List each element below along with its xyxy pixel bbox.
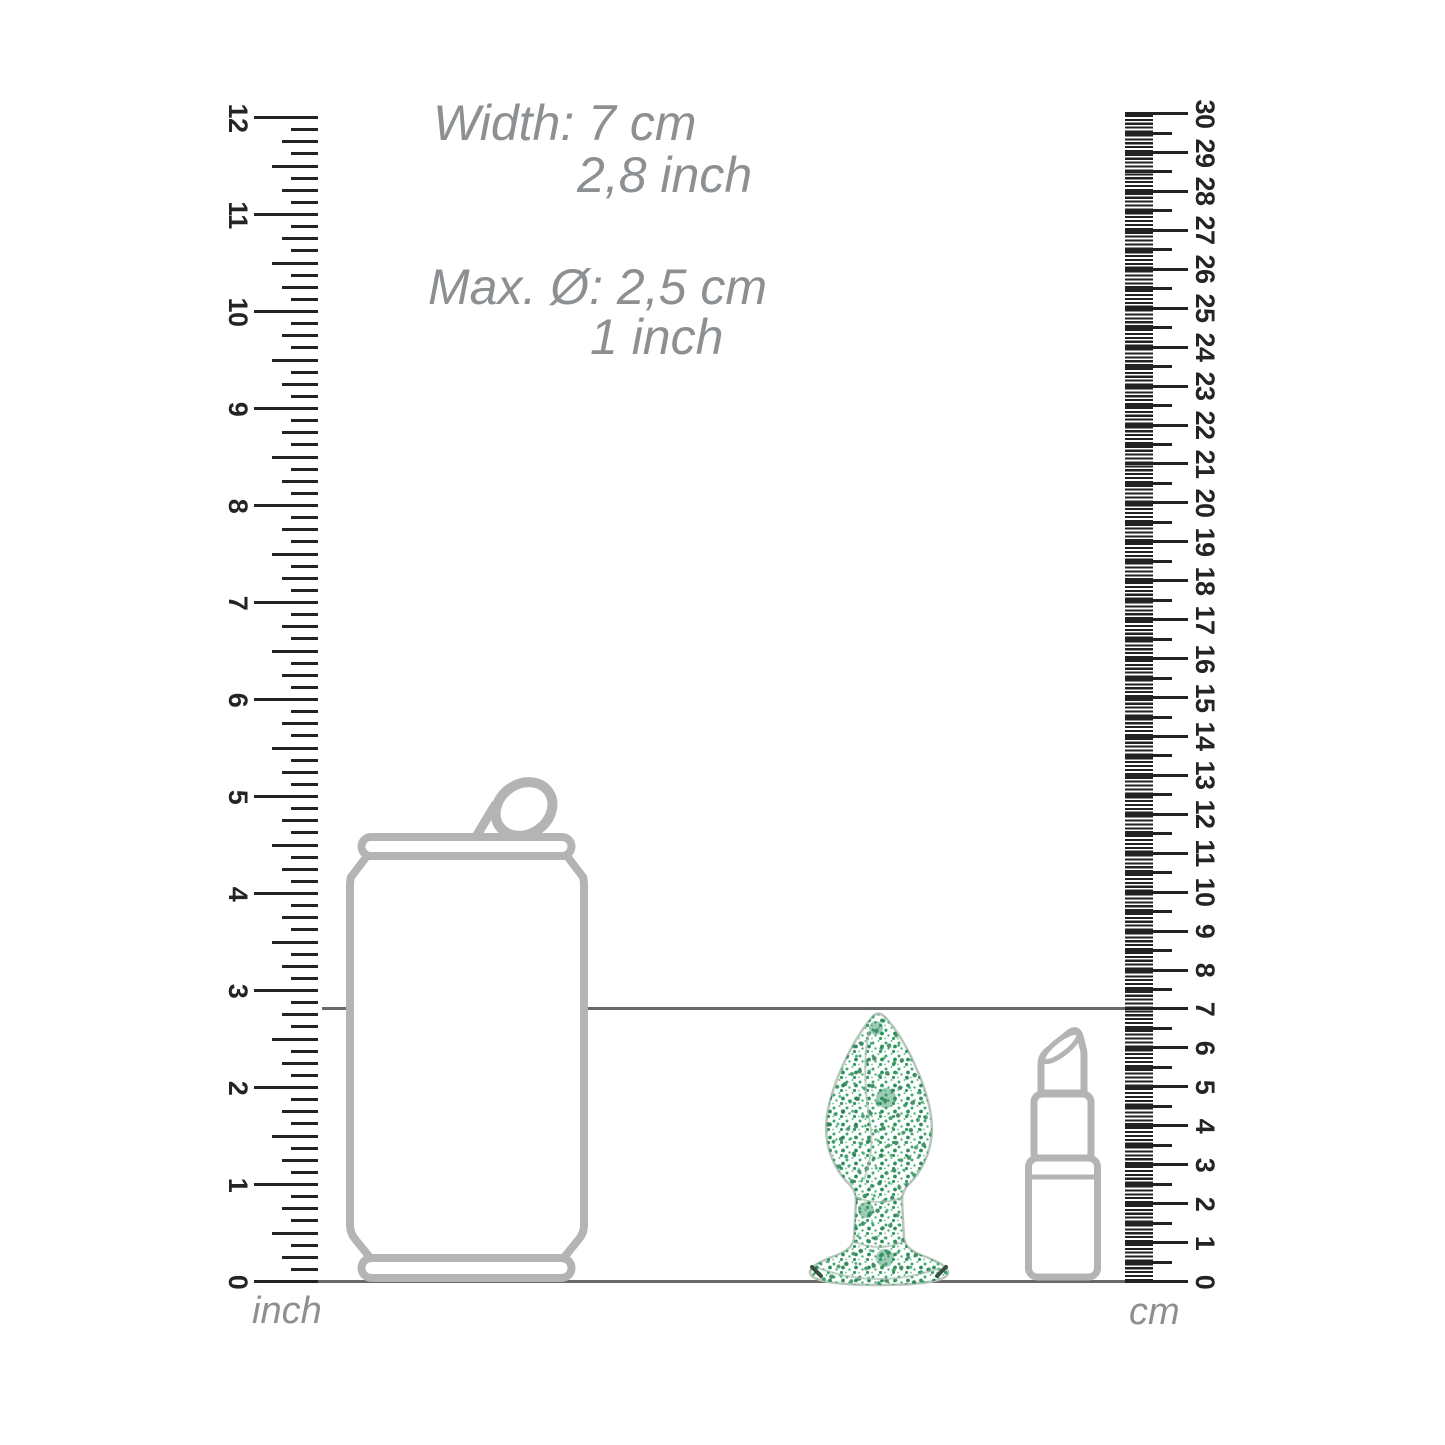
can-bottom-rim	[362, 1258, 572, 1278]
plug-glitter-speckles-2	[810, 1014, 948, 1285]
lipstick-holder	[1034, 1094, 1091, 1161]
size-diagram: Width: 7 cm 2,8 inch Max. Ø: 2,5 cm 1 in…	[0, 0, 1445, 1445]
soda-can	[350, 771, 584, 1278]
glitter-plug	[810, 1014, 948, 1285]
can-body	[350, 856, 584, 1260]
reference-objects-illustration	[0, 0, 1445, 1445]
can-top-rim	[362, 837, 572, 856]
lipstick	[1029, 1028, 1098, 1277]
